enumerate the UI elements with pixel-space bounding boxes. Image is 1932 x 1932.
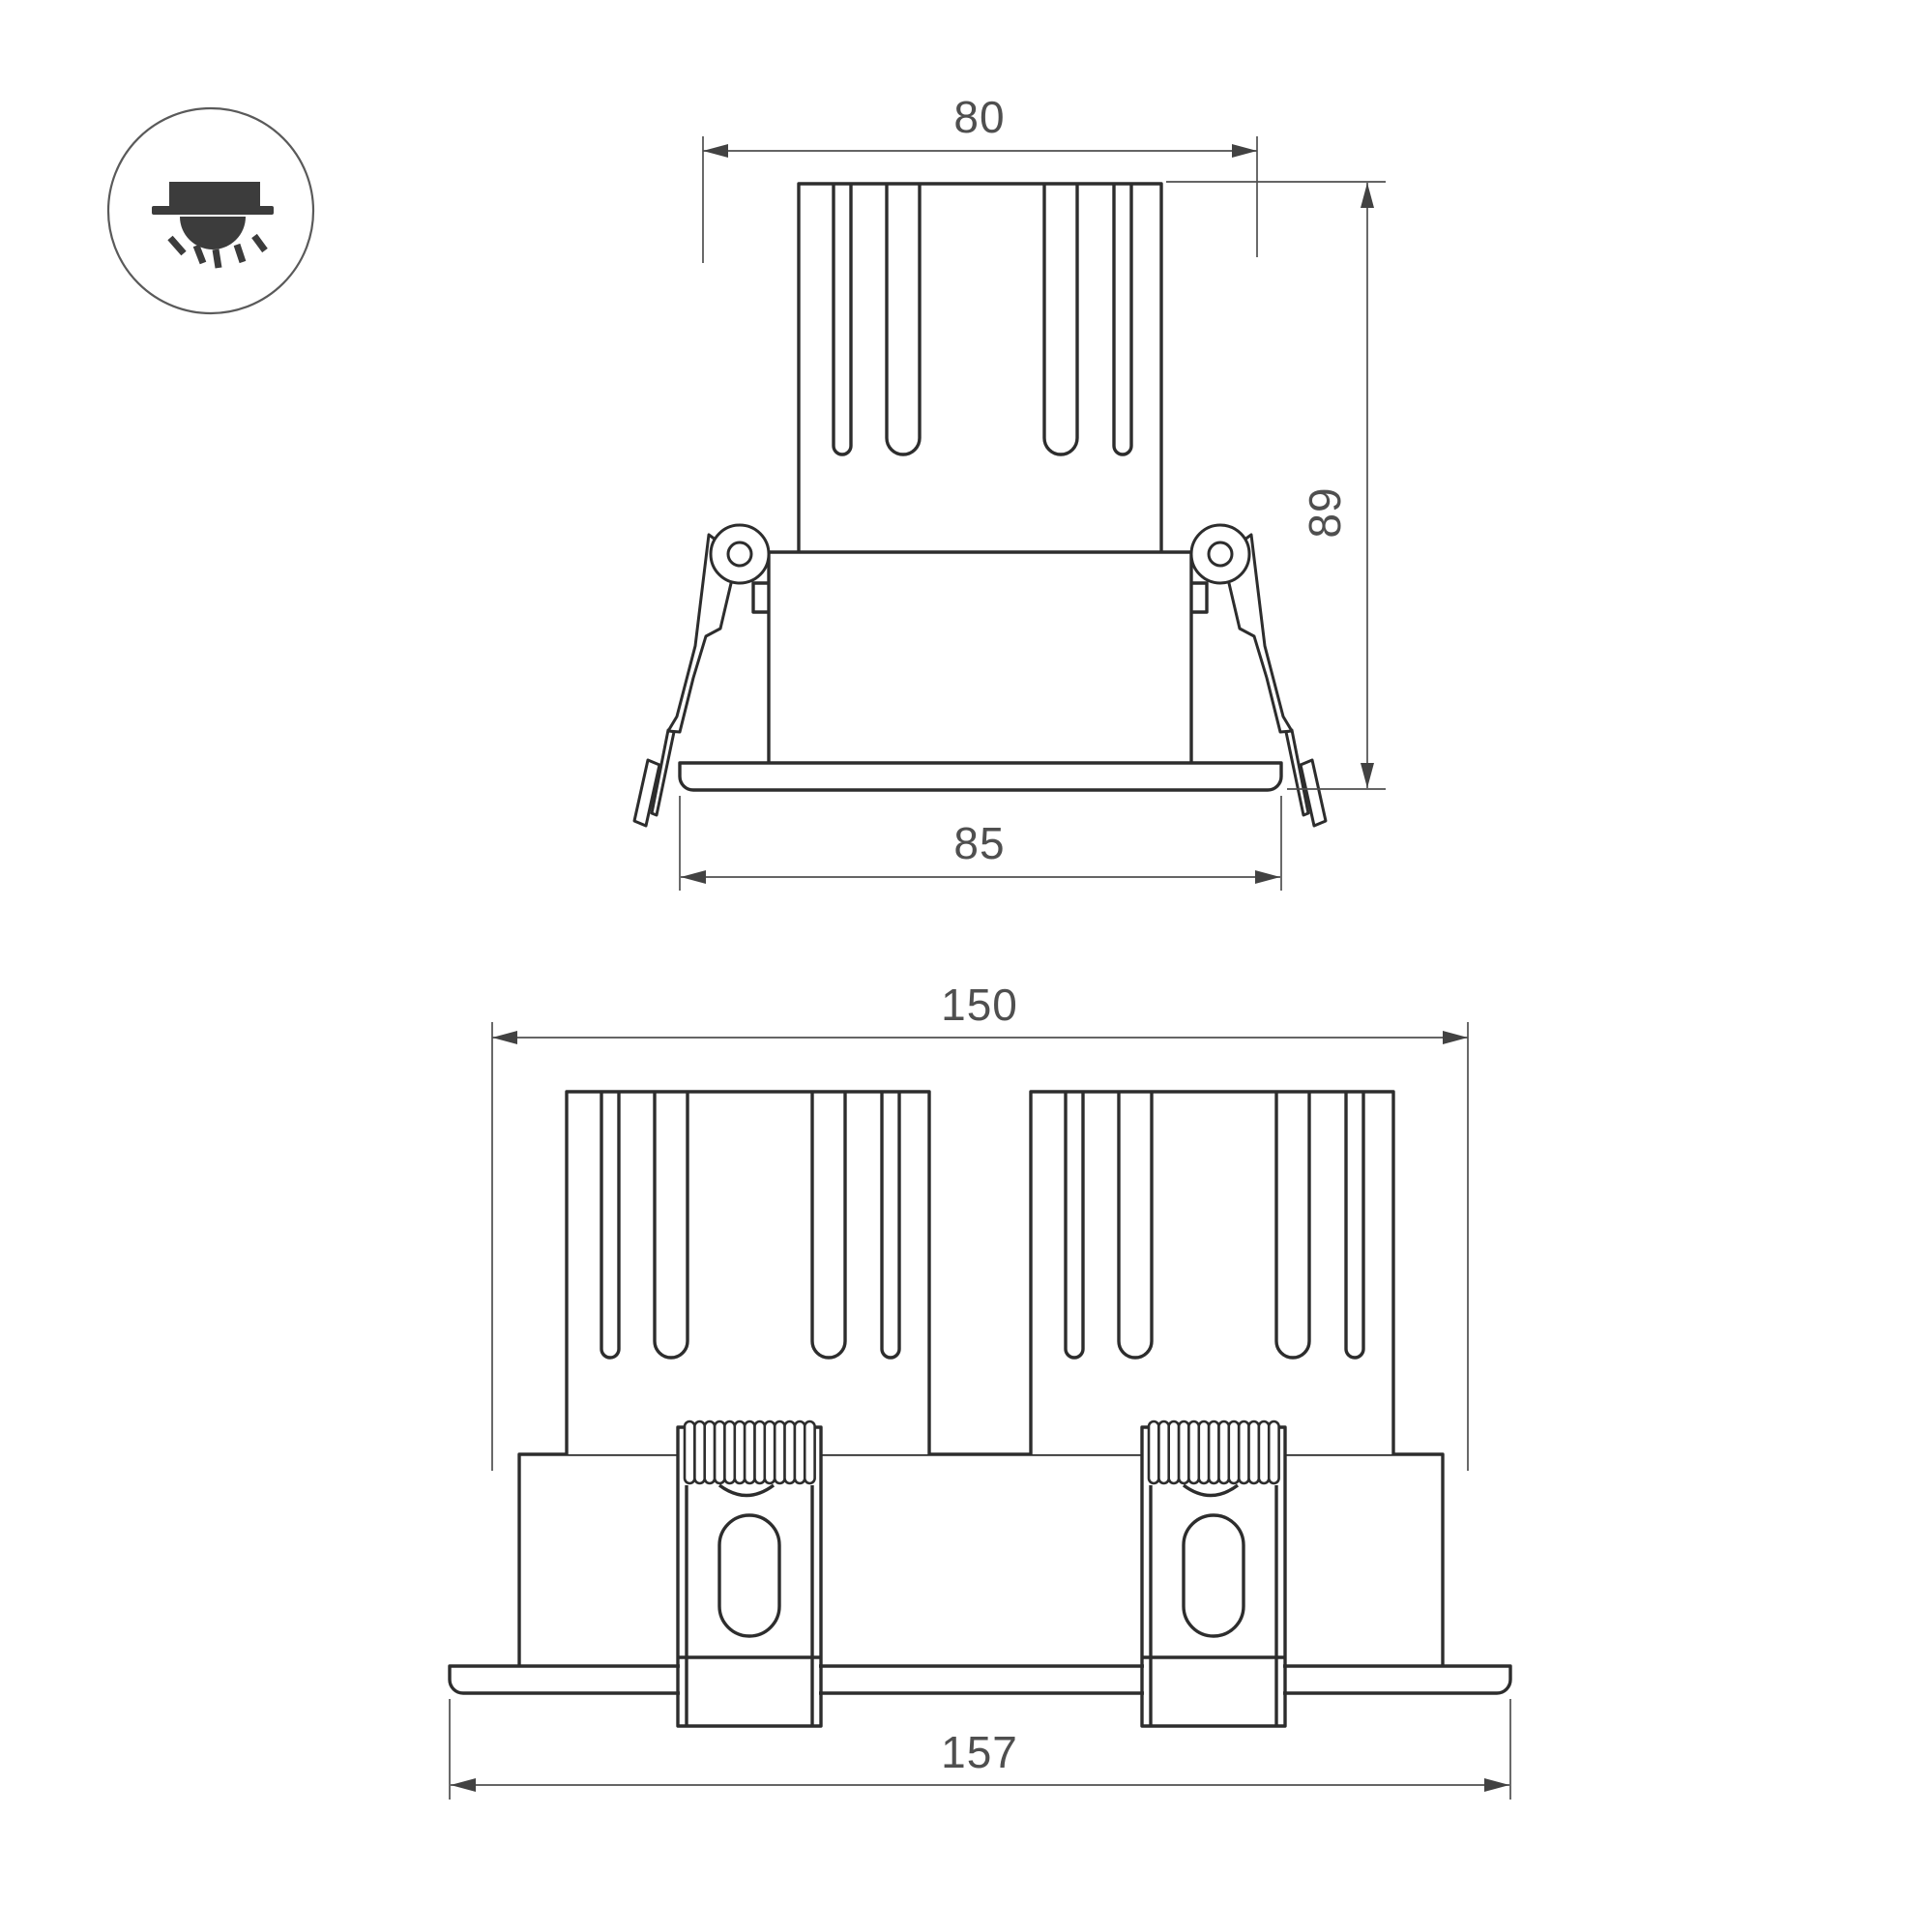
luminaire-body bbox=[753, 552, 1207, 763]
dim-label-157: 157 bbox=[941, 1727, 1018, 1777]
dimensional-drawing-canvas: 80 89 85 bbox=[0, 0, 1932, 1932]
trim-flange bbox=[680, 763, 1281, 790]
recessed-downlight-icon bbox=[108, 108, 313, 313]
dim-label-89: 89 bbox=[1300, 486, 1350, 538]
dim-label-80: 80 bbox=[953, 92, 1005, 142]
dimension-flange-width-157: 157 bbox=[450, 1699, 1510, 1800]
technical-drawing-page: 80 89 85 bbox=[0, 0, 1932, 1932]
clamp-foot-right bbox=[1142, 1657, 1285, 1726]
heatsink-module-right bbox=[1031, 1092, 1393, 1454]
coil-spring-left bbox=[685, 1421, 815, 1483]
clip-pivot-hole-left bbox=[728, 542, 751, 566]
double-luminaire-view: 150 157 bbox=[450, 980, 1510, 1800]
heatsink bbox=[799, 184, 1161, 552]
double-trim-flange bbox=[450, 1666, 1510, 1693]
dimension-flange-width-85: 85 bbox=[680, 796, 1281, 891]
clamp-tower-right bbox=[1142, 1421, 1285, 1657]
dim-label-85: 85 bbox=[953, 818, 1005, 868]
single-luminaire-view: 80 89 85 bbox=[634, 92, 1386, 891]
icon-light-dome bbox=[180, 217, 246, 249]
clamp-foot-left bbox=[678, 1657, 821, 1726]
double-body bbox=[519, 1454, 1443, 1666]
clamp-tower-left bbox=[678, 1421, 821, 1657]
icon-housing bbox=[169, 182, 260, 208]
dim-label-150: 150 bbox=[941, 980, 1018, 1030]
coil-spring-right bbox=[1149, 1421, 1279, 1483]
heatsink-module-left bbox=[567, 1092, 929, 1454]
icon-trim-bar bbox=[152, 206, 274, 215]
clip-pivot-hole-right bbox=[1209, 542, 1232, 566]
